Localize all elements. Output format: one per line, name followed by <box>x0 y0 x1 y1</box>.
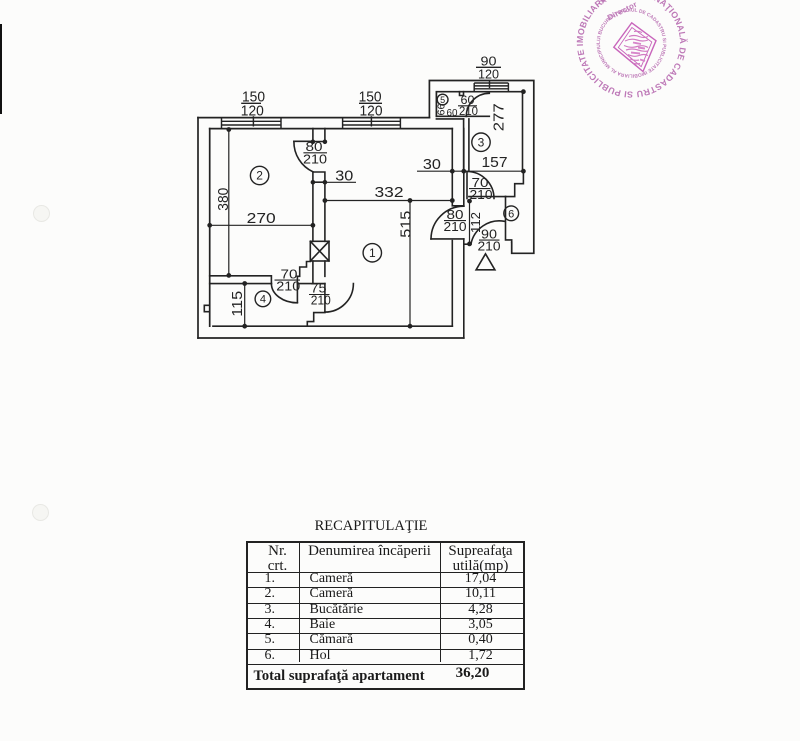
svg-text:5: 5 <box>440 95 445 105</box>
svg-text:210: 210 <box>303 152 327 167</box>
svg-text:120: 120 <box>478 67 499 82</box>
svg-text:★ AGENŢIA NAŢIONALĂ DE CADASTR: ★ AGENŢIA NAŢIONALĂ DE CADASTRU SI PUBLI… <box>0 0 688 100</box>
svg-text:OFICIUL DE CADASTRU SI PUBLICI: OFICIUL DE CADASTRU SI PUBLICITATE IMOBI… <box>0 0 667 79</box>
svg-text:120: 120 <box>360 103 383 120</box>
svg-text:332: 332 <box>375 184 404 201</box>
svg-text:120: 120 <box>241 103 264 120</box>
svg-text:210: 210 <box>478 239 501 254</box>
svg-text:210: 210 <box>311 293 331 308</box>
svg-text:210: 210 <box>276 279 300 294</box>
svg-text:4: 4 <box>260 294 266 306</box>
svg-text:6: 6 <box>508 208 514 220</box>
svg-text:30: 30 <box>423 156 441 173</box>
svg-text:270: 270 <box>247 210 276 227</box>
svg-text:380: 380 <box>215 188 232 211</box>
svg-text:1: 1 <box>369 246 376 260</box>
svg-text:210: 210 <box>470 187 493 202</box>
svg-text:2: 2 <box>256 169 263 183</box>
svg-text:277: 277 <box>491 103 508 131</box>
svg-text:60: 60 <box>447 108 458 119</box>
svg-text:210: 210 <box>459 106 478 118</box>
svg-text:157: 157 <box>482 154 508 171</box>
svg-text:515: 515 <box>398 211 415 238</box>
svg-text:3: 3 <box>478 135 485 149</box>
svg-text:210: 210 <box>444 219 467 234</box>
svg-text:115: 115 <box>229 291 246 317</box>
